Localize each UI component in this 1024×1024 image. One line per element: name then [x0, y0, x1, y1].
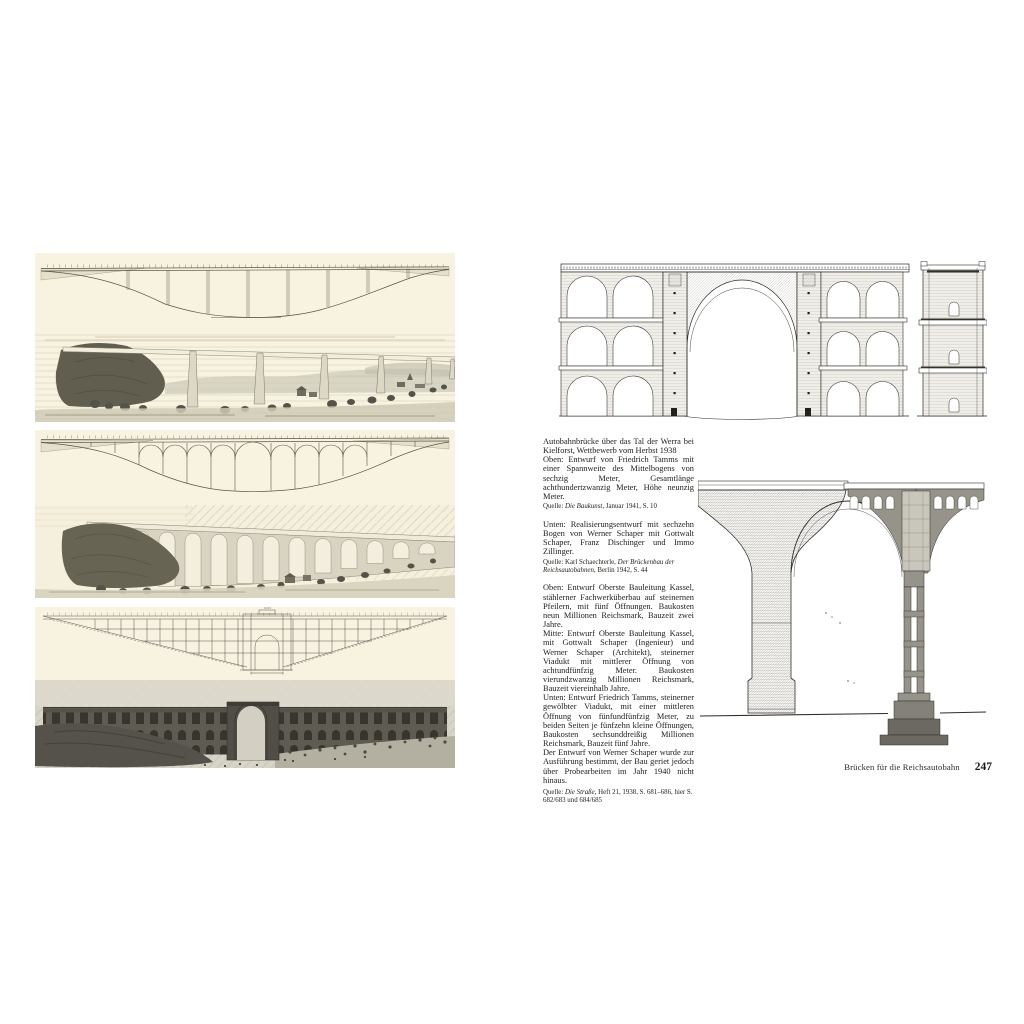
caption-ausfuehrung: Der Entwurf von Werner Schaper wurde zur…: [543, 748, 694, 785]
caption-intro: Autobahnbrücke über das Tal der Werra be…: [543, 437, 694, 455]
source-schaechterle: Quelle: Karl Schaechterle, Der Brückenba…: [543, 559, 694, 575]
page-footer: Brücken für die Reichsautobahn 247: [740, 761, 992, 773]
right-arcade: [819, 272, 907, 416]
figure-werra-beam-bridge-group: [35, 253, 455, 422]
caption-column: Autobahnbrücke über das Tal der Werra be…: [543, 437, 694, 805]
left-pier-elevation: [698, 490, 846, 713]
page-number: 247: [975, 761, 992, 773]
left-arcade: [559, 272, 665, 416]
caption-mitte-kassel: Mitte: Entwurf Oberste Bauleitung Kassel…: [543, 629, 694, 693]
caption-oben-kassel: Oben: Entwurf Oberste Bauleitung Kassel,…: [543, 583, 694, 629]
source-die-strasse: Quelle: Die Straße, Heft 21, 1938, S. 68…: [543, 789, 694, 805]
beam-bridge-elevation-drawing: [35, 253, 455, 332]
central-arch-and-piers: [663, 272, 821, 416]
trestle-viaduct-model-photo: [35, 680, 455, 768]
arch-viaduct-perspective-rendering: [35, 505, 455, 598]
source-die-baukunst: Quelle: Die Baukunst, Januar 1941, S. 10: [543, 503, 694, 511]
running-title: Brücken für die Reichsautobahn: [844, 762, 959, 772]
caption-unten-schaper: Unten: Realisierungsentwurf mit sechzehn…: [543, 520, 694, 557]
beam-bridge-perspective-rendering: [35, 332, 455, 422]
arch-viaduct-elevation-drawing: [35, 430, 455, 505]
left-page: [0, 0, 512, 1024]
stone-viaduct-elevation-drawing: [557, 258, 987, 423]
right-pier-section: [844, 483, 984, 745]
trestle-viaduct-elevation-drawing: [35, 607, 455, 679]
figure-werra-arch-viaduct-group: [35, 430, 455, 598]
figure-werra-trestle-viaduct-group: [35, 607, 455, 768]
caption-unten-tamms: Unten: Entwurf Friedrich Tamms, steinern…: [543, 693, 694, 748]
caption-oben-tamms: Oben: Entwurf von Friedrich Tamms mit ei…: [543, 455, 694, 501]
viaduct-half-elevation-half-section-drawing: [698, 473, 988, 748]
pier-cross-section-drawing: [919, 262, 987, 417]
